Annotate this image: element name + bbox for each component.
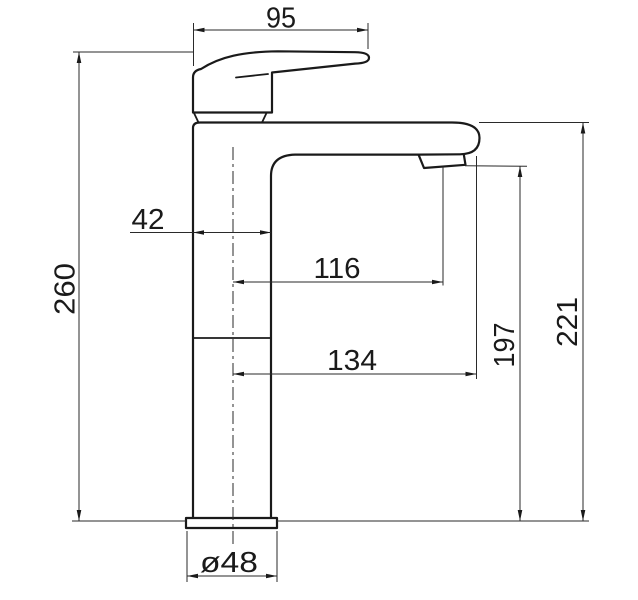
- base-flange-outline: [186, 518, 277, 528]
- arrow-95-left: [194, 28, 205, 33]
- spout-and-body-outline: [193, 123, 480, 518]
- dim-label-handle-length: 95: [266, 3, 296, 35]
- arrow-221-bottom: [581, 510, 586, 521]
- arrow-197-top: [518, 166, 523, 177]
- arrow-260-bottom: [77, 510, 82, 521]
- arrow-42-left: [193, 230, 204, 235]
- arrow-197-bottom: [518, 510, 523, 521]
- arrow-48-left: [187, 574, 198, 579]
- dim-label-outlet-offset: 116: [314, 253, 361, 285]
- arrow-116-left: [233, 280, 244, 285]
- arrow-116-right: [432, 280, 443, 285]
- dim-label-overall-height: 260: [50, 263, 82, 315]
- dim-label-spout-top-height: 221: [552, 297, 584, 347]
- arrow-221-top: [581, 123, 586, 134]
- dim-label-spout-reach: 134: [327, 345, 377, 377]
- faucet-dimension-drawing: 95 42 116 134 260 197 221 ø48: [0, 0, 638, 600]
- arrow-48-right: [266, 574, 277, 579]
- arrow-134-left: [233, 372, 244, 377]
- drawing-canvas: 95 42 116 134 260 197 221 ø48: [0, 0, 638, 600]
- arrow-260-top: [77, 52, 82, 63]
- dim-label-base-diameter: ø48: [200, 547, 258, 579]
- handle-parting-detail-line: [236, 74, 268, 78]
- dim-label-outlet-height: 197: [489, 323, 521, 368]
- dim-label-body-width: 42: [132, 204, 165, 236]
- arrow-134-right: [466, 372, 477, 377]
- handle-lever-outline: [193, 51, 369, 112]
- arrow-95-right: [357, 28, 368, 33]
- handle-neck-left-edge: [194, 113, 199, 123]
- arrow-42-right: [260, 230, 271, 235]
- handle-neck-right-edge: [262, 113, 267, 123]
- aerator-outline: [419, 154, 466, 168]
